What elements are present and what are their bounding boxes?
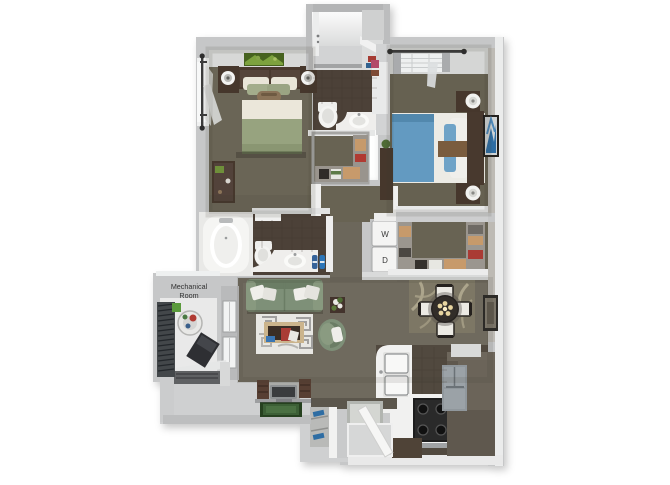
svg-text:Room: Room	[179, 291, 198, 300]
svg-text:D: D	[382, 256, 388, 265]
svg-text:W: W	[381, 230, 389, 239]
svg-text:Mechanical: Mechanical	[171, 282, 208, 291]
